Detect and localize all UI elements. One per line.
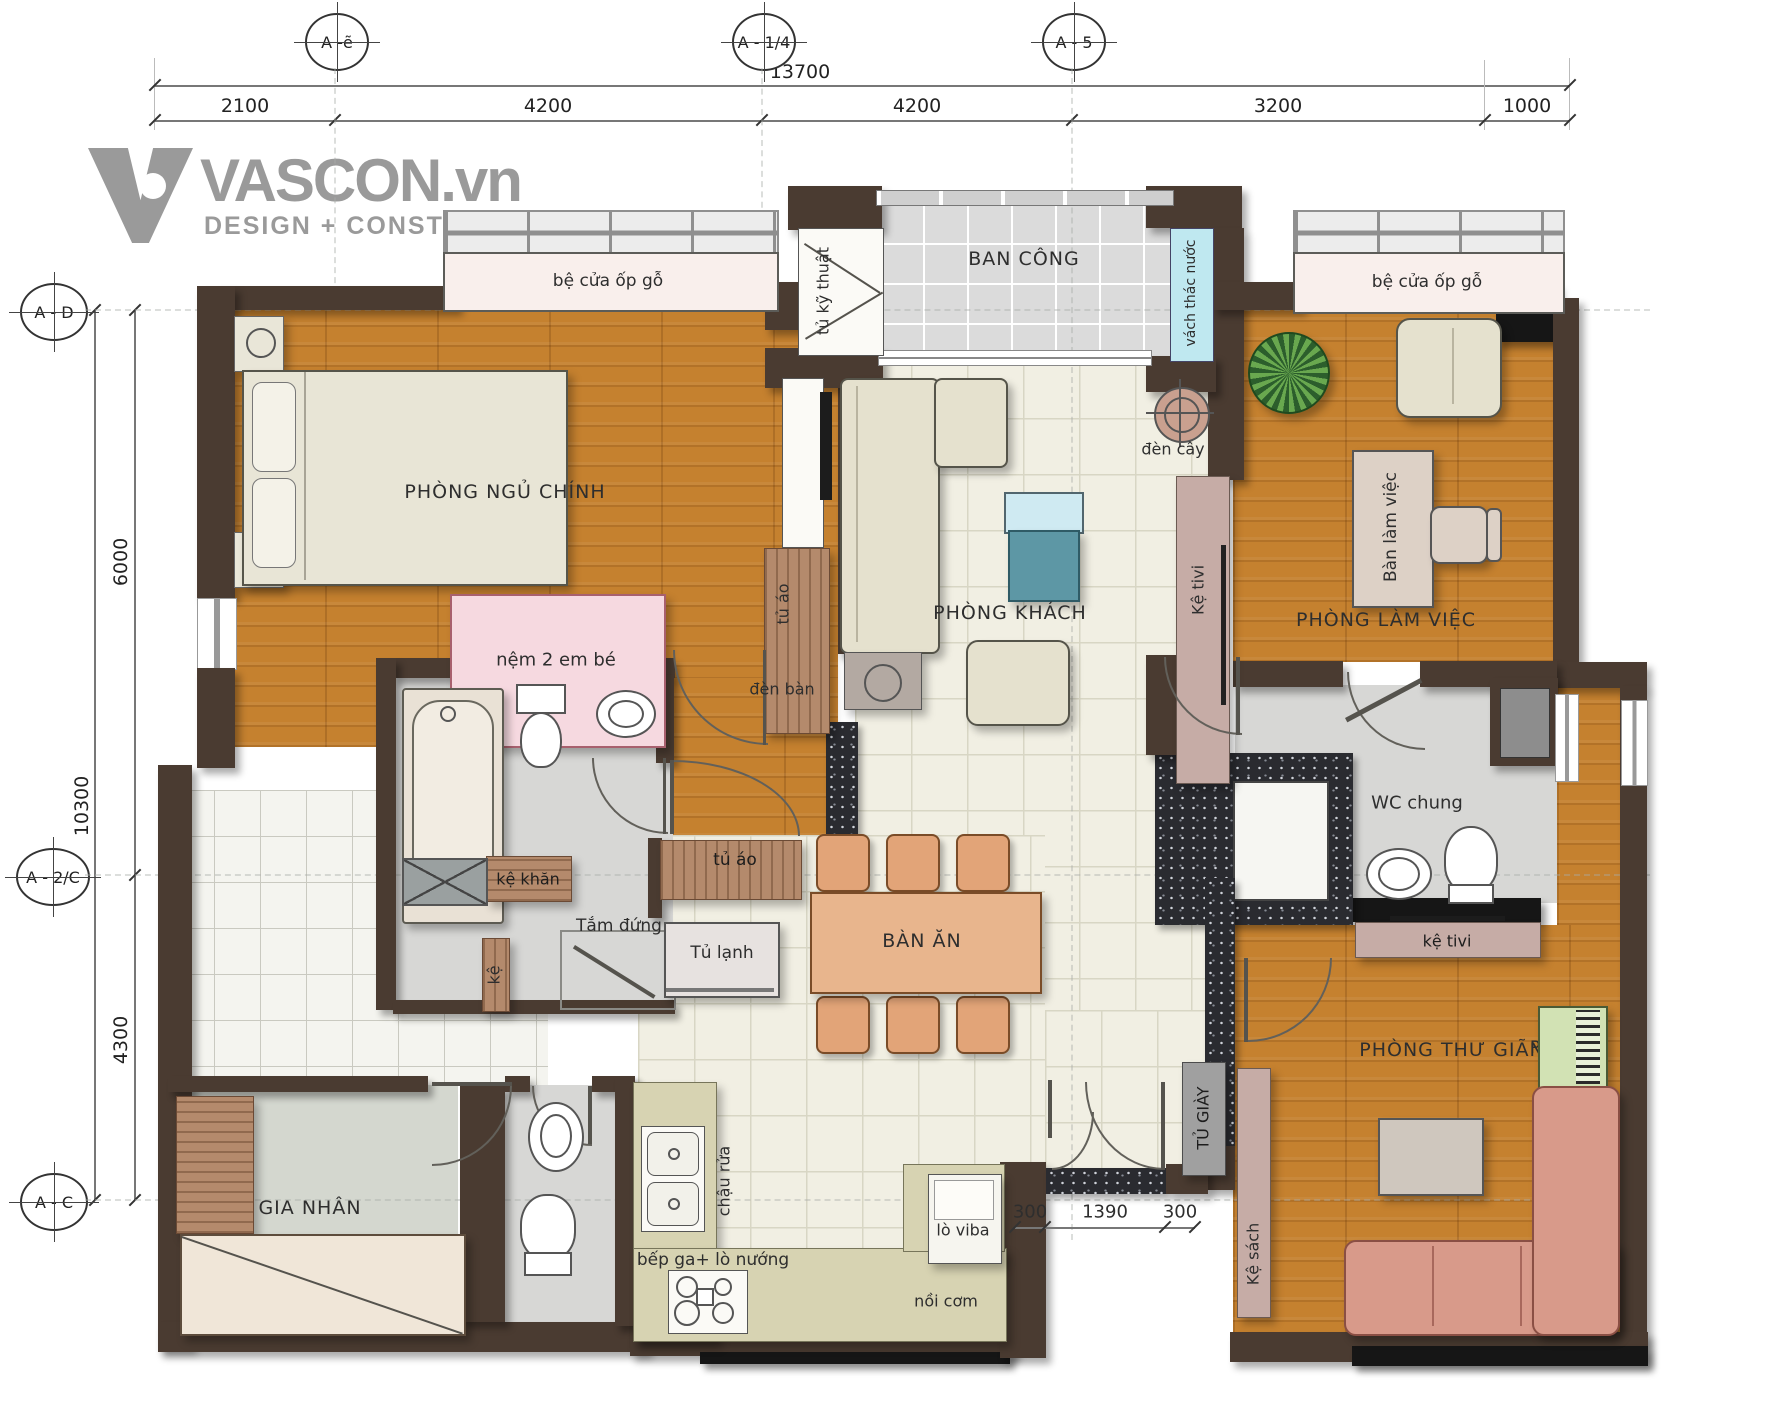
tv-icon bbox=[820, 392, 832, 500]
shared-wc-label: WC chung bbox=[1371, 793, 1463, 814]
floor-lamp-inner bbox=[1164, 397, 1200, 433]
vascon-logo-dot bbox=[140, 173, 166, 199]
shoe-cabinet-label: TỦ GIÀY bbox=[1194, 1086, 1213, 1149]
maid-wc-sink-inner bbox=[540, 1114, 572, 1158]
balcony-floor bbox=[878, 202, 1172, 364]
grid-bubble-a-e: A -ẽ bbox=[305, 13, 369, 71]
window bbox=[197, 598, 237, 670]
dim-top-2: 4200 bbox=[893, 95, 941, 117]
dining-table-label: BÀN ĂN bbox=[882, 930, 962, 952]
window bbox=[1555, 694, 1579, 782]
door-leaf bbox=[1236, 657, 1240, 735]
door-leaf bbox=[670, 760, 674, 834]
office-armchair bbox=[1396, 318, 1502, 418]
grid-label: A - 2/C bbox=[26, 868, 80, 887]
towel-shelf-label: kệ khăn bbox=[496, 870, 560, 889]
entry-dim-0: 300 bbox=[1013, 1202, 1047, 1223]
entry-dim-1: 1390 bbox=[1082, 1202, 1128, 1223]
pillow bbox=[252, 382, 296, 472]
balcony-label: BAN CÔNG bbox=[968, 248, 1079, 270]
plant-icon bbox=[1248, 332, 1330, 414]
window-frame bbox=[1293, 210, 1565, 256]
wall bbox=[1553, 662, 1647, 688]
window-frame bbox=[443, 210, 779, 256]
master-bedroom-label: PHÒNG NGỦ CHÍNH bbox=[404, 481, 605, 503]
shower-label: Tắm đứng bbox=[576, 916, 662, 936]
pillow bbox=[252, 478, 296, 568]
kitchen-sink-label: chậu rửa bbox=[715, 1146, 734, 1217]
lamp-icon bbox=[246, 328, 276, 358]
bath-sink-inner bbox=[608, 700, 644, 728]
dim-top-1: 4200 bbox=[524, 95, 572, 117]
laundry-box bbox=[402, 858, 488, 906]
wall bbox=[213, 286, 458, 310]
desk-chair bbox=[1430, 506, 1488, 564]
dim-left-lower: 4300 bbox=[110, 1016, 132, 1064]
microwave-label: lò viba bbox=[936, 1221, 989, 1240]
wall-black bbox=[1352, 1346, 1648, 1366]
wc-sink-inner bbox=[1378, 857, 1420, 891]
wc-tv-shelf-label: kệ tivi bbox=[1423, 932, 1472, 951]
wc-toilet-bowl bbox=[1444, 826, 1498, 892]
dining-chair bbox=[886, 834, 940, 892]
granite-wall bbox=[826, 722, 858, 836]
sofa-main bbox=[840, 378, 940, 654]
wall bbox=[1212, 282, 1302, 310]
grid-bubble-a-5: A - 5 bbox=[1042, 13, 1106, 71]
logo-brand: VASCON.vn bbox=[200, 146, 521, 215]
grid-line-vertical bbox=[1071, 68, 1073, 1240]
wall-black bbox=[700, 1352, 1010, 1364]
maid-wc-toilet-tank bbox=[524, 1252, 572, 1276]
window-sill-left-label: bệ cửa ốp gỗ bbox=[553, 271, 663, 291]
balcony-rail bbox=[876, 190, 1174, 206]
office-label: PHÒNG LÀM VIỆC bbox=[1296, 609, 1476, 631]
burner bbox=[712, 1302, 734, 1324]
sofa-chaise bbox=[934, 378, 1008, 468]
door-leaf bbox=[663, 758, 666, 834]
entry-threshold bbox=[1046, 1168, 1166, 1194]
maid-wc-toilet bbox=[520, 1194, 576, 1260]
burner-square bbox=[696, 1288, 714, 1306]
bookshelf-label: Kệ sách bbox=[1244, 1223, 1263, 1286]
water-feature-label: vách thác nước bbox=[1183, 240, 1199, 347]
armchair bbox=[966, 640, 1070, 726]
dining-chair bbox=[886, 996, 940, 1054]
sofa-cushion-line bbox=[1520, 1246, 1522, 1326]
burner bbox=[676, 1276, 698, 1298]
glass-niche bbox=[1500, 688, 1550, 758]
dim-top-4: 1000 bbox=[1503, 95, 1551, 117]
wall bbox=[197, 668, 235, 768]
wall bbox=[376, 658, 396, 1010]
grid-line-vertical bbox=[761, 68, 763, 218]
dim-line-left-inner bbox=[134, 310, 136, 1200]
fridge-label: Tủ lạnh bbox=[690, 943, 753, 963]
grid-bubble-a-14: A - 1/4 bbox=[732, 13, 796, 71]
dining-chair bbox=[816, 834, 870, 892]
window-sill-right-label: bệ cửa ốp gỗ bbox=[1372, 272, 1482, 292]
door-leaf bbox=[432, 1082, 512, 1086]
fridge-door-line bbox=[666, 988, 774, 992]
coffee-table-glass bbox=[1004, 492, 1084, 534]
grid-line-vertical bbox=[334, 68, 336, 303]
sink-drain bbox=[668, 1148, 680, 1160]
coffee-table bbox=[1008, 530, 1080, 602]
shaft-box bbox=[1233, 781, 1329, 901]
hall-wardrobe-label: tủ áo bbox=[713, 850, 757, 870]
dining-chair bbox=[816, 996, 870, 1054]
piano-keys bbox=[1576, 1010, 1600, 1084]
dining-chair bbox=[956, 834, 1010, 892]
dim-top-3: 3200 bbox=[1254, 95, 1302, 117]
tv-panel bbox=[782, 378, 824, 548]
window bbox=[1621, 700, 1648, 786]
rice-cooker-label: nồi cơm bbox=[914, 1292, 978, 1311]
floor-lamp-label: đèn cây bbox=[1141, 440, 1204, 459]
balcony-sliding-door bbox=[878, 350, 1152, 366]
grid-label: A - C bbox=[35, 1193, 73, 1212]
dim-line-left-outer bbox=[94, 310, 96, 1200]
toilet-tank bbox=[516, 684, 566, 714]
relax-coffee-table bbox=[1378, 1118, 1484, 1196]
floor-lamp-cross-h bbox=[1146, 412, 1214, 414]
maid-wardrobe bbox=[176, 1096, 254, 1234]
grid-label: A - 1/4 bbox=[738, 33, 791, 52]
maid-room-label: GIA NHÂN bbox=[258, 1197, 361, 1219]
dim-left-upper: 6000 bbox=[110, 538, 132, 586]
dining-chair bbox=[956, 996, 1010, 1054]
wall bbox=[615, 1076, 635, 1326]
entry-door-leaf-small bbox=[1048, 1080, 1052, 1138]
desk-chair-arm bbox=[1486, 508, 1502, 562]
baby-mattress-label: nệm 2 em bé bbox=[496, 650, 616, 671]
tech-cabinet-label: tủ kỹ thuật bbox=[814, 247, 833, 335]
dim-line-total bbox=[155, 85, 1570, 87]
entry-door-leaf bbox=[1161, 1082, 1165, 1170]
grid-bubble-a-d: A - D bbox=[20, 283, 88, 341]
small-shelf-label: kệ bbox=[485, 965, 504, 984]
wall bbox=[168, 1076, 428, 1092]
entry-dim-2: 300 bbox=[1163, 1202, 1197, 1223]
table-lamp-icon bbox=[864, 664, 902, 702]
wall bbox=[1233, 661, 1343, 687]
burner bbox=[714, 1278, 732, 1296]
sofa-seat-line bbox=[856, 386, 858, 642]
grid-bubble-a-2c: A - 2/C bbox=[16, 848, 90, 906]
microwave-inner bbox=[934, 1180, 994, 1220]
sink-drain bbox=[668, 1198, 680, 1210]
hall-wardrobe bbox=[660, 840, 802, 900]
gas-stove-label: bếp ga+ lò nướng bbox=[637, 1250, 789, 1270]
wall bbox=[788, 186, 882, 230]
master-wardrobe-label: tủ áo bbox=[774, 583, 793, 624]
vascon-logo-icon bbox=[88, 148, 193, 243]
grid-label: A - 5 bbox=[1055, 33, 1092, 52]
relax-room-label: PHÒNG THƯ GIÃN bbox=[1359, 1039, 1544, 1061]
drain-icon bbox=[440, 706, 456, 722]
toilet-bowl bbox=[520, 712, 562, 768]
door-leaf bbox=[588, 1086, 592, 1144]
grid-label: A - D bbox=[34, 303, 73, 322]
grid-label: A -ẽ bbox=[321, 33, 353, 52]
grid-bubble-a-c: A - C bbox=[20, 1173, 88, 1231]
master-wardrobe bbox=[764, 548, 830, 734]
wall bbox=[197, 286, 235, 598]
office-armchair-line bbox=[1452, 328, 1454, 404]
floor-plan-sheet: VASCON.vn DESIGN + CONSTRUCTION 13700 21… bbox=[0, 0, 1789, 1411]
desk-label: Bàn làm việc bbox=[1381, 472, 1401, 582]
relax-sofa-right bbox=[1532, 1086, 1620, 1336]
shower-stall bbox=[560, 930, 676, 1010]
dim-left-outer: 10300 bbox=[71, 776, 93, 836]
tv-icon bbox=[1390, 916, 1505, 921]
blanket-line bbox=[304, 372, 306, 580]
living-tv-shelf-label: Kệ tivi bbox=[1189, 565, 1208, 615]
table-lamp-label: đèn bàn bbox=[749, 680, 814, 699]
dim-top-0: 2100 bbox=[221, 95, 269, 117]
door-leaf bbox=[1244, 958, 1248, 1042]
dim-line-segments bbox=[155, 120, 1570, 122]
sofa-cushion-line bbox=[1432, 1246, 1434, 1326]
wc-toilet-tank bbox=[1448, 884, 1494, 904]
living-room-label: PHÒNG KHÁCH bbox=[933, 602, 1087, 624]
wall bbox=[1553, 298, 1579, 666]
